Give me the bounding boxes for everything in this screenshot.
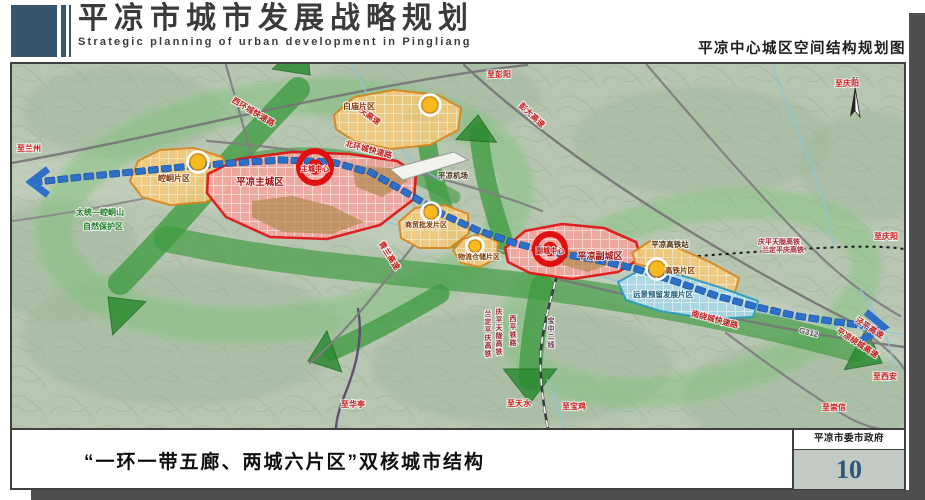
development-axis-dash — [109, 170, 120, 177]
development-axis-dash — [239, 159, 249, 166]
page-shadow-bottom — [31, 490, 925, 500]
zone-label-gaotie: 高铁片区 — [665, 265, 695, 275]
map-label: 平凉机场 — [438, 170, 468, 180]
development-axis-dash — [226, 159, 236, 166]
district-node — [649, 261, 665, 277]
development-axis-dash — [174, 164, 185, 171]
header: 平凉市城市发展战略规划 Strategic planning of urban … — [0, 0, 925, 62]
development-axis-dash — [252, 158, 262, 165]
development-axis-dash — [83, 173, 94, 180]
development-axis-dash — [58, 175, 69, 182]
map-label: 庆平天陇高铁 — [495, 307, 504, 356]
district-node — [424, 205, 438, 219]
map-label: 至崇信 — [822, 402, 846, 412]
page-title: 平凉市城市发展战略规划 — [78, 1, 474, 37]
district-node — [190, 154, 206, 170]
development-axis-dash — [821, 317, 832, 325]
zone-label-yuanjing: 远景预留发展片区 — [633, 289, 693, 299]
city-center-label-main: 主城中心 — [301, 164, 329, 173]
map-label: 至西安 — [873, 371, 897, 381]
zone-label-baimiao: 白庙片区 — [343, 101, 375, 111]
district-node — [469, 240, 481, 252]
page-shadow-right — [909, 13, 925, 500]
zone-label-subcity: 平凉副城区 — [577, 250, 622, 261]
development-axis-dash — [135, 167, 146, 174]
title-block: 平凉市城市发展战略规划 Strategic planning of urban … — [78, 1, 474, 48]
zone-label-shangmao: 商贸批发片区 — [405, 220, 447, 229]
logo-bar — [69, 5, 71, 57]
logo-bar — [61, 5, 66, 57]
content-frame: N至兰州至彭阳至庆阳至庆阳至西安至崇信至华亭至天水至宝鸡平庆高速彭大高速西环城快… — [10, 62, 906, 490]
map-label: 至华亭 — [341, 399, 365, 409]
page-number: 10 — [794, 450, 904, 489]
map-label: 至宝鸡 — [562, 401, 586, 411]
map-label: 自然保护区 — [83, 221, 123, 231]
map-caption: 平凉中心城区空间结构规划图 — [698, 37, 906, 58]
map-label: 至庆阳 — [835, 78, 859, 88]
development-axis-dash — [122, 169, 133, 176]
page-subtitle-en: Strategic planning of urban development … — [78, 36, 474, 48]
map-label: 庆平天陇高铁 — [757, 237, 800, 246]
development-axis-dash — [795, 313, 806, 321]
slide-page: 平凉市城市发展战略规划 Strategic planning of urban … — [0, 0, 925, 500]
development-axis-dash — [96, 171, 107, 178]
map-label: 太统—崆峒山 — [75, 207, 124, 217]
city-center-label-sub: 副城中心 — [536, 246, 564, 255]
development-axis-dash — [148, 166, 159, 173]
logo-mark — [11, 5, 57, 57]
structure-caption: “一环一带五廊、两城六片区”双核城市结构 — [84, 447, 485, 474]
district-node — [422, 97, 438, 113]
map-label: 兰定平庆高铁 — [762, 245, 804, 254]
map-label: 兰定平庆高铁 — [484, 309, 492, 358]
zone-label-wuliu: 物流仓储片区 — [458, 252, 500, 261]
development-axis-dash — [161, 165, 172, 172]
page-info-box: 平凉市委市政府 10 — [792, 430, 904, 488]
zone-label-kongtong: 崆峒片区 — [158, 173, 190, 183]
development-axis-dash — [808, 315, 819, 323]
map-label: 宝中二线 — [548, 316, 555, 349]
map-label: 至兰州 — [17, 143, 41, 153]
development-axis-dash — [70, 174, 81, 181]
agency-label: 平凉市委市政府 — [794, 430, 904, 450]
development-axis-dash — [265, 157, 275, 164]
development-axis-dash — [278, 157, 288, 164]
development-axis-dash — [213, 161, 223, 168]
footer: “一环一带五廊、两城六片区”双核城市结构 平凉市委市政府 10 — [12, 430, 904, 488]
map-label: 平凉高铁站 — [651, 239, 689, 249]
map-label: 至彭阳 — [487, 69, 511, 79]
planning-map-svg: N至兰州至彭阳至庆阳至庆阳至西安至崇信至华亭至天水至宝鸡平庆高速彭大高速西环城快… — [12, 64, 904, 428]
development-axis-dash — [45, 177, 56, 184]
zone-label-maincity: 平凉主城区 — [236, 176, 284, 188]
map-label: 至庆阳 — [874, 231, 898, 241]
planning-map: N至兰州至彭阳至庆阳至庆阳至西安至崇信至华亭至天水至宝鸡平庆高速彭大高速西环城快… — [12, 64, 904, 430]
map-label: 至天水 — [507, 398, 532, 408]
